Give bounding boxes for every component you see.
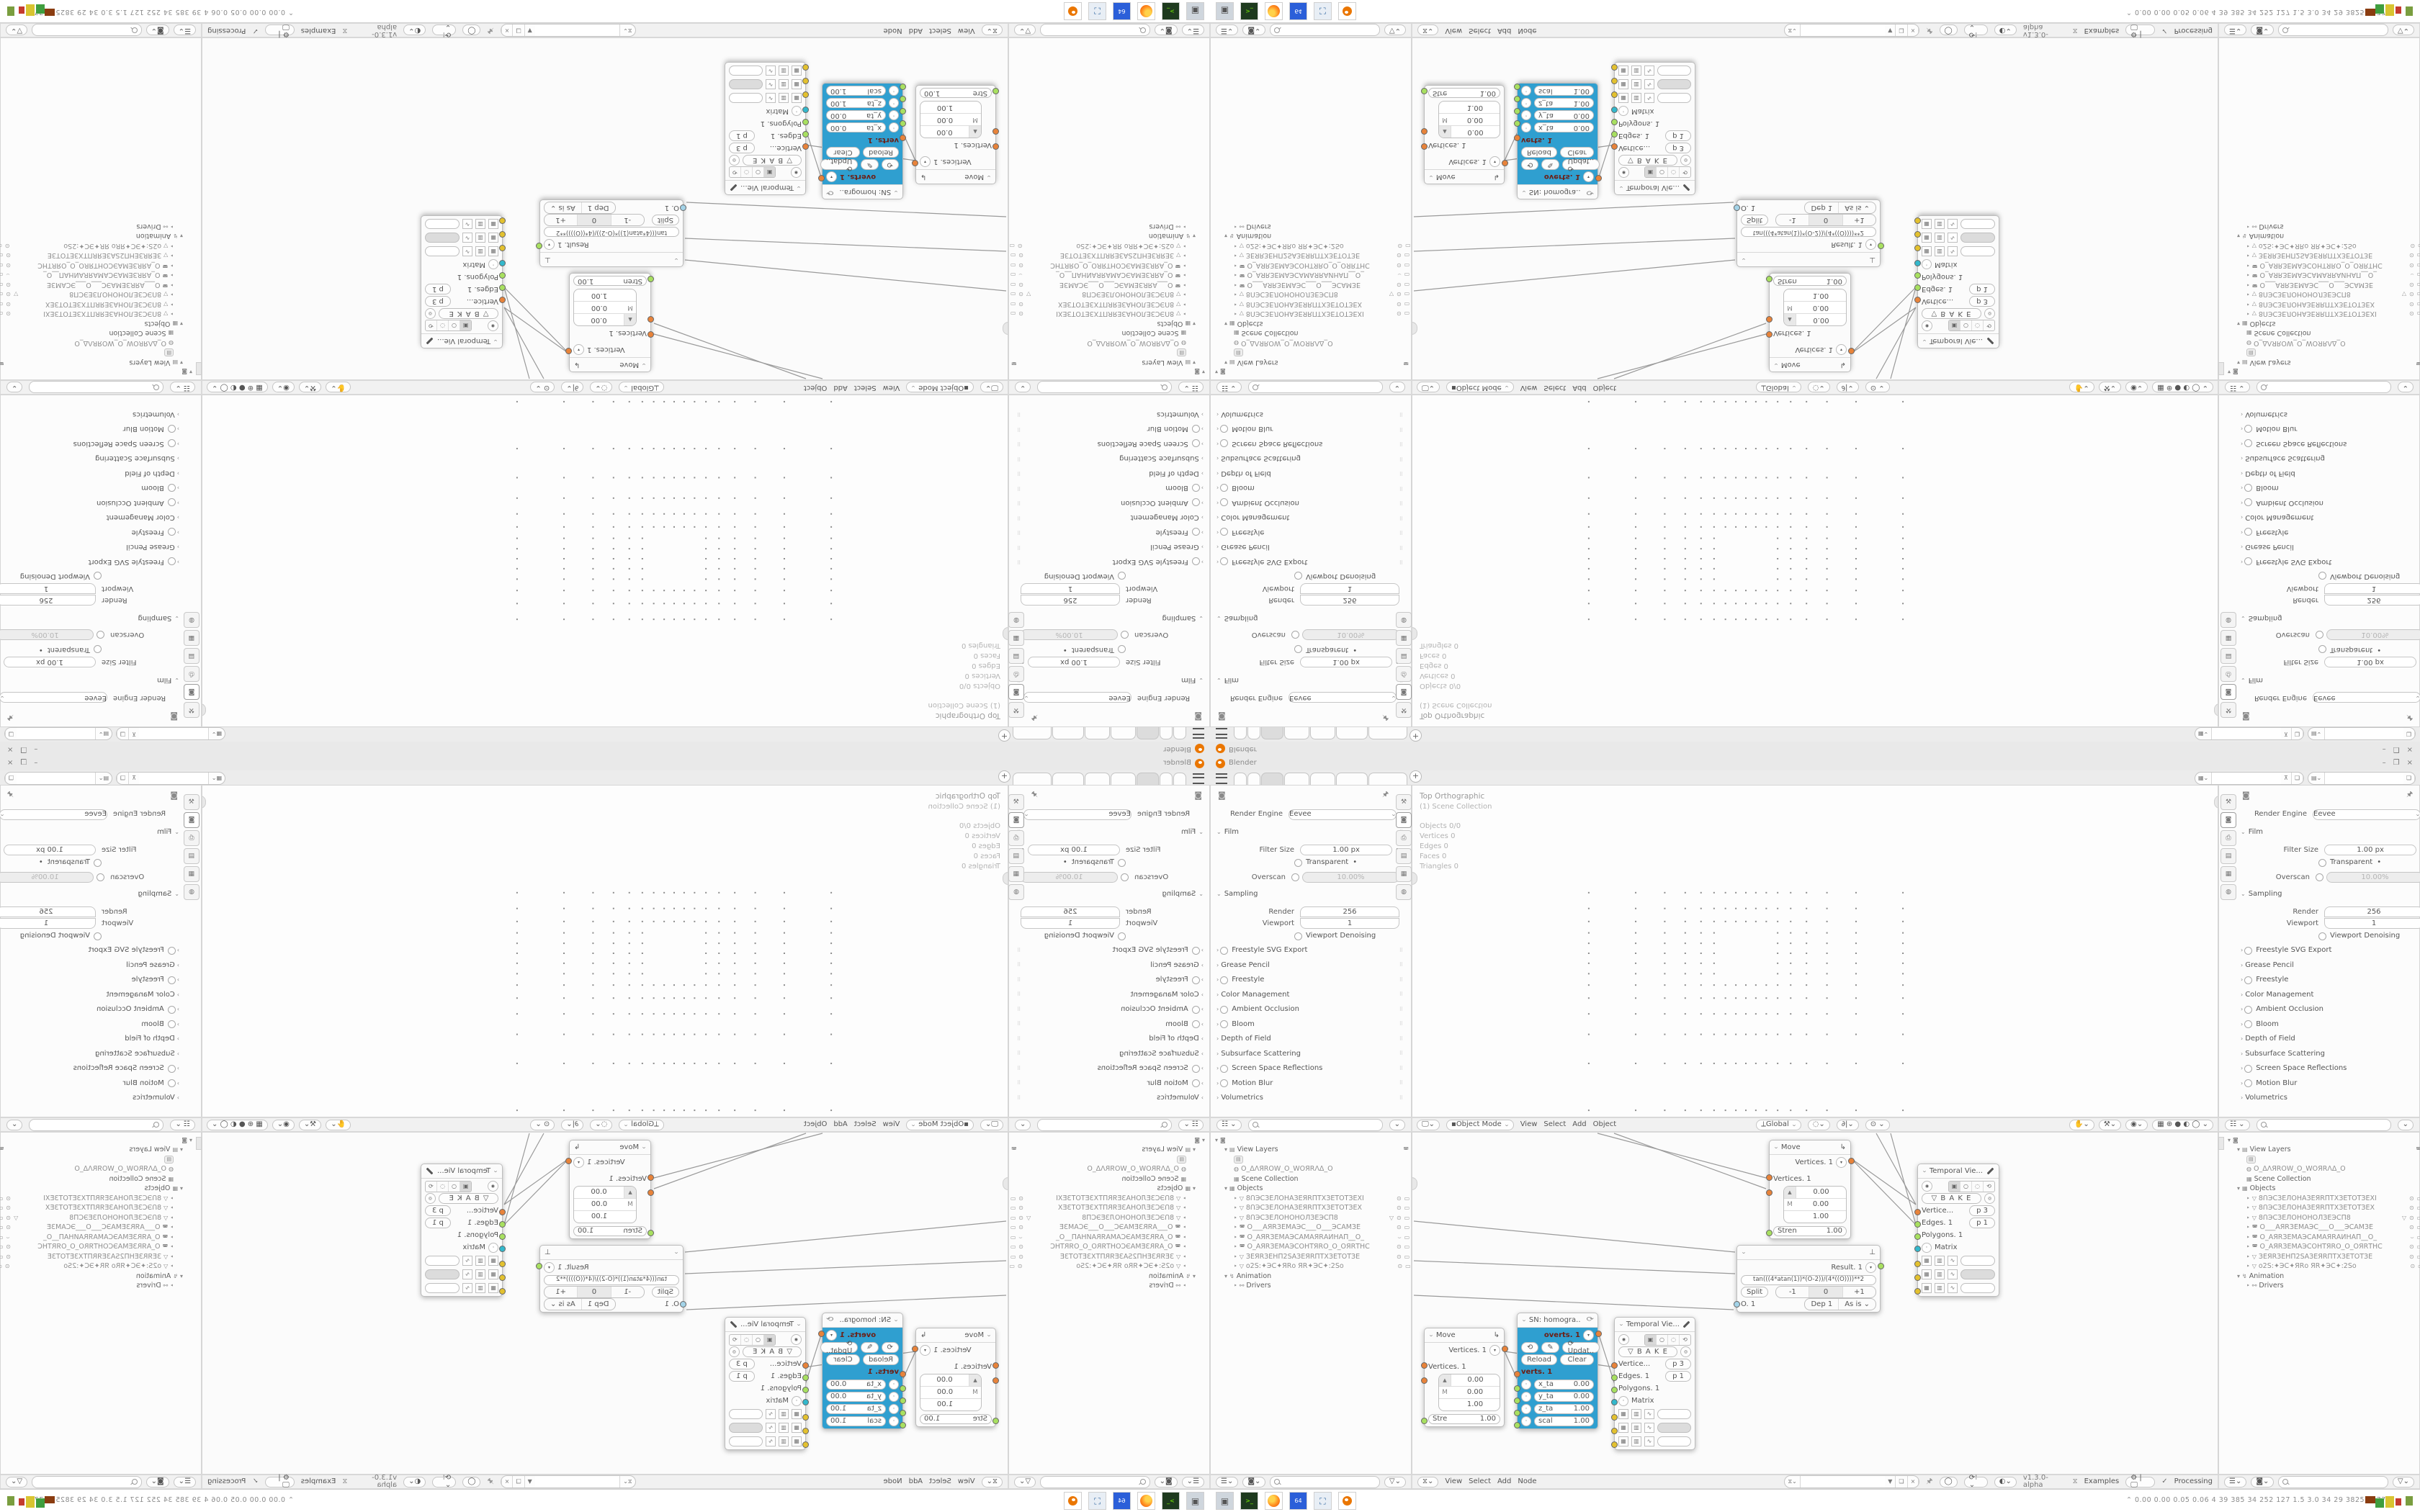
outliner-row[interactable]: ‣◚О_АЯRЗЕМАЭСАМАЯRАИНАП__О_⌣▭◚ [2246, 270, 2420, 279]
properties-tab-world-icon[interactable]: ◍ [1396, 612, 1412, 628]
screen-icon[interactable]: ▭ [2417, 1254, 2420, 1260]
prop-row-screen-space-reflections[interactable]: ›Screen Space Reflections⠿ [1016, 1063, 1204, 1074]
show-toggle[interactable]: ◉ [791, 1334, 802, 1345]
socket-yellow[interactable] [1611, 1414, 1618, 1421]
panel-checkbox[interactable] [1192, 1065, 1200, 1073]
panel-checkbox[interactable] [2244, 484, 2252, 492]
cam-icon[interactable]: ◚ [1011, 359, 1017, 365]
prop-row-bloom[interactable]: ›Bloom⠿ [1016, 1020, 1204, 1030]
pin-icon[interactable]: 🖈 [1382, 791, 1389, 798]
editor-type-button[interactable]: ☷ ⌄ [1178, 1120, 1204, 1130]
outliner-row[interactable]: ‣▽о2S:✦ЭС✦ЯRо ЯR✦ЭС✦:2Sо⊙▭◘ [2246, 241, 2420, 251]
copy-icon[interactable]: ❏ [5, 728, 17, 739]
socket-green[interactable] [1514, 96, 1520, 102]
panel-checkbox[interactable] [1220, 484, 1228, 492]
material-field[interactable] [729, 94, 763, 104]
screen-icon[interactable]: ▭ [1404, 1225, 1410, 1230]
outliner-row[interactable]: ▾↯Animation [1224, 231, 1412, 240]
transform-orientation-select[interactable]: ⟂ Global⌄ [619, 382, 663, 393]
view-layer-selector[interactable]: ▤⌄❏ [2308, 772, 2416, 785]
depth-field[interactable]: Dep 1 [1805, 202, 1839, 213]
socket-yellow[interactable] [1611, 1441, 1618, 1448]
properties-tab-tool-icon[interactable]: ⚒ [184, 702, 200, 718]
outliner-row[interactable]: ‣◚О_АЯRЗЕМАЭСАМАЯRАИНАП__О_⌣▭◚ [999, 270, 1186, 279]
socket-yellow[interactable] [1914, 231, 1921, 238]
close-button[interactable]: × [7, 760, 13, 767]
outliner-row[interactable]: ▾◙ [1018, 1135, 1205, 1145]
bake-button[interactable]: ▽ B A K E [1618, 1346, 1677, 1357]
socket-green[interactable] [536, 243, 542, 249]
search-input[interactable] [1270, 24, 1379, 37]
pick-value[interactable]: p 3 [1969, 296, 1995, 307]
strength-field[interactable]: Stren1.00 [573, 1226, 647, 1236]
prop-row-freestyle[interactable]: ›Freestyle⠿ [1216, 527, 1404, 537]
screen-icon[interactable]: ▭ [2417, 1225, 2420, 1230]
anim-dot-icon[interactable]: • [1063, 859, 1067, 866]
workspace-tab-3[interactable] [1137, 773, 1159, 785]
prop-row-freestyle[interactable]: ›Freestyle⠿ [0, 527, 179, 537]
editor-type-button[interactable]: 🖵⌄ [980, 382, 1003, 393]
select-toggle[interactable]: ◎ [425, 308, 436, 319]
outliner-row[interactable]: ▾▦Objects [2237, 1184, 2420, 1194]
outliner-row[interactable]: ‣◚О___АЯRЗЕМАЭС___О___ЭСАМЗЕ⊙▭◚ [1234, 280, 1421, 289]
funnel-icon[interactable]: ▽ [1389, 1215, 1394, 1221]
taskbar-screenshot-tool-icon[interactable]: ▣ [1216, 2, 1234, 20]
copy-icon[interactable]: ❏ [1896, 24, 1907, 36]
shading-mode-buttons[interactable]: ▦ ⊕ ● ◐ ◯ ⌄ [2152, 382, 2213, 393]
editor-type-button[interactable]: ☷ ⌄ [1178, 382, 1204, 393]
eye-icon[interactable]: ⊙ [2409, 282, 2414, 287]
shading-mode-buttons[interactable]: ▦ ⊕ ● ◐ ◯ ⌄ [2152, 1120, 2213, 1130]
scene-name-field[interactable] [139, 773, 208, 784]
prop-row-freestyle[interactable]: ›Freestyle⠿ [1016, 527, 1204, 537]
options-dropdown-button[interactable]: ⌄ [1015, 1120, 1031, 1130]
workspace-tab-7[interactable] [1013, 773, 1052, 785]
properties-tab-render-icon[interactable]: ◙ [1396, 812, 1412, 828]
properties-tab-tool-icon[interactable]: ⚒ [184, 794, 200, 810]
minimize-button[interactable]: – [2383, 760, 2386, 767]
outliner-row[interactable]: ‣▽8ՈЭСЗЕЛОНАЗЕЯRПТХЗЕТОТЗЕХІ⊙▭◚ [1234, 309, 1421, 318]
node-move[interactable]: ⌄Move↳Vertices. 1▾Vertices. 1▲0.00M0.001… [915, 85, 996, 184]
outliner-row[interactable]: ▦Scene Collection [0, 328, 174, 338]
workspace-tab-3[interactable] [1261, 773, 1283, 785]
prop-row-subsurface-scattering[interactable]: ›Subsurface Scattering⠿ [2241, 1049, 2420, 1059]
eye-icon[interactable]: ⊙ [2410, 1264, 2415, 1269]
screen-icon[interactable]: ▭ [0, 1235, 3, 1241]
outliner-row[interactable]: ▾↯Animation [2237, 1272, 2420, 1281]
vector-value[interactable]: 1.00 [574, 1213, 624, 1220]
param-z_ta[interactable]: z_ta1.00 [1534, 99, 1594, 109]
pick-value[interactable]: p 1 [1665, 1371, 1691, 1382]
panel-checkbox[interactable] [1220, 1006, 1228, 1014]
copy-icon[interactable]: ❏ [2292, 773, 2303, 784]
anim-dot-icon[interactable]: • [1353, 859, 1357, 866]
outliner-row[interactable]: ▾◙ [1215, 1135, 1402, 1145]
editor-type-button[interactable]: ☷ ⌄ [2225, 1120, 2250, 1130]
outliner-row[interactable]: ‣▽8ՈЭСЗЕЛОНАЗЕЯRПТХЗЕТОТЗЕХ⊙▭◚ [1234, 1204, 1421, 1213]
options-dropdown-button[interactable]: ⌄ [2398, 382, 2414, 393]
prop-row-motion-blur[interactable]: ›Motion Blur⠿ [1016, 1079, 1204, 1089]
material-field[interactable] [425, 1256, 460, 1266]
panel-checkbox[interactable] [2244, 976, 2252, 984]
fake-user-shield-icon[interactable]: ▼ [1885, 24, 1896, 36]
prop-row-ambient-occlusion[interactable]: ›Ambient Occlusion⠿ [1216, 498, 1404, 508]
close-icon[interactable]: × [501, 1476, 513, 1488]
socket-green[interactable] [1514, 108, 1520, 114]
socket-orange[interactable] [1421, 1362, 1428, 1369]
outliner-row[interactable]: ▤ [2246, 1155, 2420, 1164]
display-toggle-2[interactable]: ◌ [1972, 1182, 1984, 1192]
workspace-tab-3[interactable] [1137, 727, 1159, 739]
prop-row-depth-of-field[interactable]: ›Depth of Field⠿ [0, 468, 179, 478]
outliner-row[interactable]: ‣◚О_АЯRЗЕМАЭСОНТЯRО_О_ОЯRТНС⊙▭◚ [0, 261, 174, 270]
anim-dot-icon[interactable]: • [1353, 646, 1357, 653]
socket-orange[interactable] [1502, 1346, 1508, 1352]
workspace-tab-5[interactable] [1310, 773, 1335, 785]
outliner-row[interactable]: ▾↯Animation [2237, 231, 2420, 240]
prop-row-motion-blur[interactable]: ›Motion Blur⠿ [1216, 424, 1404, 434]
viewport-menu-add[interactable]: Add [1572, 384, 1586, 391]
refresh-button[interactable]: ⟲ [882, 1342, 899, 1353]
socket-green[interactable] [1914, 284, 1921, 291]
viewport-menu-select[interactable]: Select [854, 384, 877, 391]
prop-row-bloom[interactable]: ›Bloom⠿ [2241, 1020, 2420, 1030]
bake-button[interactable]: ▽ B A K E [743, 155, 802, 166]
prop-row-volumetrics[interactable]: ›Volumetrics⠿ [1216, 409, 1404, 419]
screen-icon[interactable]: ▭ [1010, 1215, 1016, 1221]
taskbar-terminal-icon[interactable]: >_ [1240, 1492, 1258, 1510]
node-temporal[interactable]: ⌄Temporal Vie...◉▣○◌⟲▽ B A K E◎Vertice..… [1917, 1164, 1999, 1297]
viewport-menu-object[interactable]: Object [1593, 1121, 1617, 1128]
show-toggle[interactable]: ◉ [1618, 167, 1629, 178]
render-engine-select[interactable]: Eevee⌄ [1023, 809, 1131, 820]
material-field[interactable] [1960, 1283, 1995, 1293]
filter-type-button[interactable]: ◙⌄ [146, 25, 169, 36]
snap-target-button[interactable]: ◌⌄ [1808, 1120, 1830, 1130]
screen-icon[interactable]: ▭ [1010, 1244, 1016, 1250]
outliner-row[interactable]: ▦Scene Collection [999, 1174, 1186, 1184]
properties-tab-output-icon[interactable]: ⎙ [1008, 666, 1024, 682]
viewport-menu-add[interactable]: Add [1572, 1121, 1586, 1128]
outliner-row[interactable]: ‣▽о2S:✦ЭС✦ЯRо ЯR✦ЭС✦:2Sо⊙▭◘ [999, 1262, 1186, 1272]
socket-cyan[interactable] [499, 1246, 506, 1252]
outliner-row[interactable]: ‣◚О_АЯRЗЕМАЭСОНТЯRО_О_ОЯRТНС⊙▭◚ [0, 1243, 174, 1252]
filter-type-button[interactable]: ◙⌄ [146, 1477, 169, 1488]
taskbar-floppy-64-icon[interactable]: 64 [1289, 1492, 1307, 1510]
prop-value-field[interactable]: 1 [2324, 918, 2420, 929]
node-move[interactable]: ⌄Move↳Vertices. 1▾Vertices. 1▲0.00M0.001… [1769, 1140, 1851, 1239]
screen-icon[interactable]: ▭ [1404, 301, 1410, 307]
draw-toggle[interactable]: ◯ [1940, 1477, 1958, 1488]
outliner-row[interactable]: ‣▽8ՈЭСЗЕЛОНОНОЛЗЕЭСП8▽⊙▭◚ [1234, 289, 1421, 299]
prop-row-freestyle-svg-export[interactable]: ›Freestyle SVG Export⠿ [0, 557, 179, 567]
view-layer-name-field[interactable] [2325, 728, 2403, 739]
cam-icon[interactable]: ◚ [1403, 359, 1409, 365]
display-mode-button[interactable]: ☰⌄ [2224, 25, 2246, 36]
screen-icon[interactable]: ▭ [2417, 1205, 2420, 1211]
panel-checkbox[interactable] [168, 976, 176, 984]
search-input[interactable] [1248, 1119, 1383, 1131]
socket-green[interactable] [1421, 1418, 1428, 1424]
prop-row-motion-blur[interactable]: ›Motion Blur⠿ [1016, 424, 1204, 434]
outliner-row[interactable]: ‣◚О_АЯRЗЕМАЭСОНТЯRО_О_ОЯRТНС⊙▭◚ [999, 1243, 1186, 1252]
filter-dropdown-button[interactable]: ▽⌄ [2393, 25, 2414, 36]
node-tree-selector[interactable]: ⧖⌄▼❏× [1784, 1475, 1919, 1488]
panel-collapse-handle[interactable] [2218, 362, 2224, 375]
material-field[interactable] [1657, 1423, 1691, 1433]
prop-value-field[interactable]: 1.00 px [2324, 845, 2416, 855]
eye-icon[interactable]: ⊙ [2409, 311, 2414, 317]
param-x_ta[interactable]: x_ta0.00 [826, 1380, 886, 1390]
outliner-row[interactable]: ‣▽8ՈЭСЗЕЛОНАЗЕЯRПТХЗЕТОТЗЕХ⊙▭◚ [1234, 300, 1421, 309]
node-menu-view[interactable]: View [1445, 27, 1462, 34]
display-toggle-0[interactable]: ▣ [763, 1335, 775, 1345]
funnel-icon[interactable]: ▽ [14, 292, 18, 297]
eye-icon[interactable]: ⊙ [6, 311, 11, 317]
properties-tab-world-icon[interactable]: ◍ [184, 884, 200, 900]
eye-icon[interactable]: ⊙ [1018, 282, 1023, 287]
properties-tab-world-icon[interactable]: ◍ [184, 612, 200, 628]
taskbar-floppy-64-icon[interactable]: 64 [1289, 2, 1307, 20]
prop-value-field[interactable]: 256 [1021, 595, 1120, 606]
bake-button[interactable]: ▽ B A K E [1922, 1193, 1981, 1204]
param-scal[interactable]: scal1.00 [1534, 86, 1594, 96]
socket-green[interactable] [1878, 1263, 1884, 1269]
socket-orange[interactable] [499, 1209, 506, 1215]
taskbar-blender-icon[interactable] [1338, 2, 1356, 20]
prop-value-field[interactable]: 1.00 px [1028, 657, 1120, 667]
outliner-row[interactable]: ‣▽8ՈЭСЗЕЛОНАЗЕЯRПТХЗЕТОТЗЕХ⊙▭◚ [999, 1204, 1186, 1213]
socket-orange[interactable] [1421, 128, 1428, 135]
display-mode-button[interactable]: ☰⌄ [1182, 25, 1204, 36]
xray-toggle[interactable]: ✋⌄ [2069, 1120, 2094, 1130]
strength-field[interactable]: Stren1.00 [1773, 276, 1847, 287]
panel-checkbox[interactable] [1192, 1006, 1200, 1014]
outliner-row[interactable]: ‣▽ЗЕЯRЗЕНП2SАЗЕЯRПТХЗЕТОТЗЕ⊙▭◚ [1234, 251, 1421, 260]
render-engine-select[interactable]: Eevee⌄ [0, 809, 107, 820]
prop-row-subsurface-scattering[interactable]: ›Subsurface Scattering⠿ [1016, 454, 1204, 464]
prop-value-field[interactable]: 1.00 px [4, 845, 96, 855]
checkbox[interactable] [94, 646, 102, 654]
taskbar-image-viewer-icon[interactable]: ⛶ [1314, 1492, 1332, 1510]
node-move[interactable]: ⌄Move↳Vertices. 1▾Vertices. 1▲0.00M0.001… [1424, 1328, 1505, 1427]
render-engine-select[interactable]: Eevee⌄ [2313, 809, 2420, 820]
material-field[interactable] [1960, 1269, 1995, 1279]
prop-row-ambient-occlusion[interactable]: ›Ambient Occlusion⠿ [1016, 1004, 1204, 1014]
strength-field[interactable]: Stre1.00 [1428, 89, 1500, 99]
socket-green[interactable] [992, 1418, 999, 1424]
editor-type-button[interactable]: ☷ ⌄ [1216, 382, 1242, 393]
anim-dot-icon[interactable]: • [39, 859, 43, 866]
pick-value[interactable]: p 1 [729, 1371, 755, 1382]
material-field[interactable] [1657, 80, 1691, 90]
step-cell[interactable]: +1 [544, 215, 577, 225]
properties-tab-viewlayer-icon[interactable]: ▤ [1396, 848, 1412, 864]
panel-checkbox[interactable] [1220, 1065, 1228, 1073]
node-sn[interactable]: ⌄SN: homogra..⟳overts. 1▾⟲✎⟳ Updat..Relo… [822, 1313, 903, 1429]
node-menu-view[interactable]: View [1445, 1478, 1462, 1485]
gizmos-dropdown[interactable]: ◉⌄ [2125, 1120, 2148, 1130]
vector-value[interactable]: 0.00 [1796, 304, 1846, 311]
node-result[interactable]: ⌄⊥Result. 1▾tan(((4*atan(1))*(O-2))/(4*(… [539, 199, 684, 267]
scene-selector[interactable]: ▦⌄⊼❏ [116, 727, 225, 740]
properties-tab-render-icon[interactable]: ◙ [1396, 684, 1412, 700]
mode-select[interactable]: ▪ Object Mode⌄ [1446, 1120, 1514, 1130]
maximize-button[interactable]: ❐ [20, 745, 27, 752]
node-sn[interactable]: ⌄SN: homogra..⟳overts. 1▾⟲✎⟳ Updat..Relo… [822, 83, 903, 199]
node-tree-selector[interactable]: ⧖⌄▼❏× [501, 24, 636, 37]
workspace-tab-5[interactable] [1310, 727, 1335, 739]
vector-value[interactable]: 0.00 [920, 1377, 969, 1384]
socket-green[interactable] [1421, 88, 1428, 94]
eye-icon[interactable]: ⊙ [1397, 1196, 1402, 1202]
workspace-tab-6[interactable] [1336, 773, 1368, 785]
socket-orange[interactable] [647, 1189, 654, 1196]
workspace-tab-4[interactable] [1284, 773, 1309, 785]
split-button[interactable]: Split [652, 1287, 679, 1297]
viewport-menu-add[interactable]: Add [833, 1121, 847, 1128]
funnel-icon[interactable]: ▽ [1389, 292, 1394, 297]
toolbar-collapse-handle[interactable] [1003, 627, 1008, 640]
prop-row-color-management[interactable]: ›Color Management⠿ [0, 990, 179, 1000]
prop-row-ambient-occlusion[interactable]: ›Ambient Occlusion⠿ [1016, 498, 1204, 508]
select-toggle[interactable]: ◎ [729, 155, 740, 166]
screen-icon[interactable]: ▭ [0, 292, 3, 297]
proportional-edit-button[interactable]: ∂|⌄ [561, 1120, 583, 1130]
node-menu-add[interactable]: Add [909, 27, 923, 34]
shade-options-button[interactable]: ◐⌄ [403, 25, 426, 36]
screen-icon[interactable]: ▭ [1405, 1264, 1411, 1269]
options-dropdown-button[interactable]: ⌄ [1389, 382, 1405, 393]
param-y_ta[interactable]: y_ta0.00 [826, 1392, 886, 1402]
tree-name-field[interactable] [1801, 24, 1885, 36]
toolbar-collapse-handle[interactable] [1003, 322, 1008, 335]
properties-tab-world-icon[interactable]: ◍ [2220, 884, 2236, 900]
reload-button[interactable]: Reload [863, 147, 899, 158]
eye-icon[interactable]: ⊙ [1018, 253, 1023, 258]
draw-toggle[interactable]: ◯ [1940, 25, 1958, 36]
pick-value[interactable]: p 1 [729, 130, 755, 141]
socket-green[interactable] [1514, 120, 1520, 127]
prop-row-volumetrics[interactable]: ›Volumetrics⠿ [1016, 409, 1204, 419]
split-button[interactable]: Split [1741, 215, 1768, 225]
strength-field[interactable]: Stre1.00 [1428, 1414, 1500, 1424]
scene-name-field[interactable] [2212, 728, 2281, 739]
prop-row-grease-pencil[interactable]: ›Grease Pencil⠿ [1216, 542, 1404, 552]
socket-orange[interactable] [1502, 160, 1508, 166]
pick-value[interactable]: p 1 [1665, 130, 1691, 141]
socket-green[interactable] [1514, 1385, 1520, 1392]
screen-icon[interactable]: ▭ [0, 301, 3, 307]
display-mode-button[interactable]: ☰⌄ [174, 25, 196, 36]
outliner-row[interactable]: ‣▽о2S:✦ЭС✦ЯRо ЯR✦ЭС✦:2Sо⊙▭◘ [0, 241, 174, 251]
as-is-select[interactable]: As is ⌄ [544, 1299, 581, 1310]
prop-row-freestyle[interactable]: ›Freestyle⠿ [1016, 975, 1204, 985]
socket-orange[interactable] [992, 1362, 999, 1369]
outliner-row[interactable]: ‣▽о2S:✦ЭС✦ЯRо ЯR✦ЭС✦:2Sо⊙▭◘ [999, 241, 1186, 251]
checkbox[interactable] [1294, 646, 1302, 654]
node-temporal[interactable]: ⌄Temporal Vie...◉▣○◌⟲▽ B A K E◎Vertice..… [421, 215, 503, 348]
copy-icon[interactable]: ❏ [2403, 773, 2415, 784]
workspace-tab-1[interactable] [1234, 773, 1247, 785]
prop-row-motion-blur[interactable]: ›Motion Blur⠿ [0, 424, 179, 434]
pin-icon[interactable]: ⊼ [2281, 728, 2292, 739]
material-field[interactable] [1657, 66, 1691, 76]
outliner-row[interactable]: ▾◙ [5, 367, 192, 377]
update-button[interactable]: ⟳ Updat.. [1562, 159, 1600, 170]
properties-tab-viewlayer-icon[interactable]: ▤ [2220, 848, 2236, 864]
socket-yellow[interactable] [499, 231, 506, 238]
options-dropdown-button[interactable]: ⌄ [1015, 382, 1031, 393]
transform-orientation-select[interactable]: ⟂ Global⌄ [1756, 1120, 1801, 1130]
bake-button[interactable]: ▽ B A K E [1922, 308, 1981, 319]
xray-toggle[interactable]: ✋⌄ [326, 1120, 351, 1130]
maximize-button[interactable]: ❐ [20, 760, 27, 767]
eye-icon[interactable]: ⊙ [1397, 282, 1402, 287]
properties-tab-scene-icon[interactable]: ▦ [184, 630, 200, 646]
eye-icon[interactable]: ⊙ [6, 1215, 11, 1221]
node-temporal[interactable]: ⌄Temporal Vie...◉▣○◌⟲▽ B A K E◎Vertice..… [725, 62, 806, 195]
socket-green[interactable] [647, 1230, 654, 1236]
step-cell[interactable]: -1 [1776, 215, 1809, 225]
outliner-row[interactable]: ▾◙ [2228, 1135, 2415, 1145]
panel-checkbox[interactable] [2244, 947, 2252, 955]
socket-cyan[interactable] [499, 260, 506, 266]
eye-icon[interactable]: ⊙ [1018, 1196, 1023, 1202]
editor-type-button[interactable]: 🖵⌄ [1417, 382, 1440, 393]
mode-select[interactable]: ▪ Object Mode⌄ [906, 1120, 974, 1130]
minimize-button[interactable]: – [34, 745, 37, 752]
outliner-row[interactable]: ‣▽о2S:✦ЭС✦ЯRо ЯR✦ЭС✦:2Sо⊙▭◘ [0, 1262, 174, 1272]
prop-value-field[interactable]: 1.00 px [4, 657, 96, 667]
update-options-button[interactable]: ⟳⁝⌄ [1964, 1477, 1988, 1488]
socket-orange[interactable] [1611, 1362, 1618, 1369]
panel-collapse-handle[interactable] [2218, 1137, 2224, 1150]
outliner-row[interactable]: ◍O_ΔΛЯROW_O_WOЯRΛΔ_O [0, 1165, 174, 1174]
screen-icon[interactable]: ▭ [2417, 282, 2420, 287]
copy-icon[interactable]: ❏ [512, 1476, 524, 1488]
panel-checkbox[interactable] [1192, 558, 1200, 566]
outliner-row[interactable]: ‣◚О___АЯRЗЕМАЭС___О___ЭСАМЗЕ⊙▭◚ [0, 1223, 174, 1233]
tree-name-field[interactable] [1801, 1476, 1885, 1488]
pick-value[interactable]: p 3 [729, 143, 755, 153]
panel-checkbox[interactable] [2244, 528, 2252, 536]
pin-icon[interactable]: 🖈 [1031, 791, 1038, 798]
socket-cyan[interactable] [802, 1399, 809, 1405]
outliner-row[interactable]: ▦Scene Collection [1234, 328, 1421, 338]
view-layer-name-field[interactable] [2325, 773, 2403, 784]
prop-row-ambient-occlusion[interactable]: ›Ambient Occlusion⠿ [2241, 498, 2420, 508]
fake-user-shield-icon[interactable]: ▼ [1885, 1476, 1896, 1488]
screen-icon[interactable]: ▭ [0, 272, 3, 278]
anim-dot-icon[interactable]: • [39, 646, 43, 653]
render-engine-select[interactable]: Eevee⌄ [1289, 693, 1397, 703]
outliner-row[interactable]: ‣▽8ՈЭСЗЕЛОНАЗЕЯRПТХЗЕТОТЗЕХ⊙▭◚ [0, 300, 174, 309]
filter-dropdown-button[interactable]: ▽⌄ [1384, 1477, 1406, 1488]
properties-tab-output-icon[interactable]: ⎙ [2220, 666, 2236, 682]
pin-icon[interactable]: 🖈 [2406, 791, 2413, 798]
prop-row-screen-space-reflections[interactable]: ›Screen Space Reflections⠿ [2241, 1063, 2420, 1074]
prop-row-subsurface-scattering[interactable]: ›Subsurface Scattering⠿ [1016, 1049, 1204, 1059]
anim-dot-icon[interactable]: • [0, 847, 1, 854]
properties-tab-world-icon[interactable]: ◍ [1396, 884, 1412, 900]
outliner-row[interactable]: ‣◚О_АЯRЗЕМАЭСОНТЯRО_О_ОЯRТНС⊙▭◚ [2246, 261, 2420, 270]
eye-icon[interactable]: ⊙ [1018, 1254, 1023, 1260]
search-input[interactable] [1040, 24, 1149, 37]
workspace-tab-2[interactable] [1160, 727, 1173, 739]
properties-tab-world-icon[interactable]: ◍ [2220, 612, 2236, 628]
overlays-dropdown[interactable]: ⚒⌄ [299, 1120, 321, 1130]
